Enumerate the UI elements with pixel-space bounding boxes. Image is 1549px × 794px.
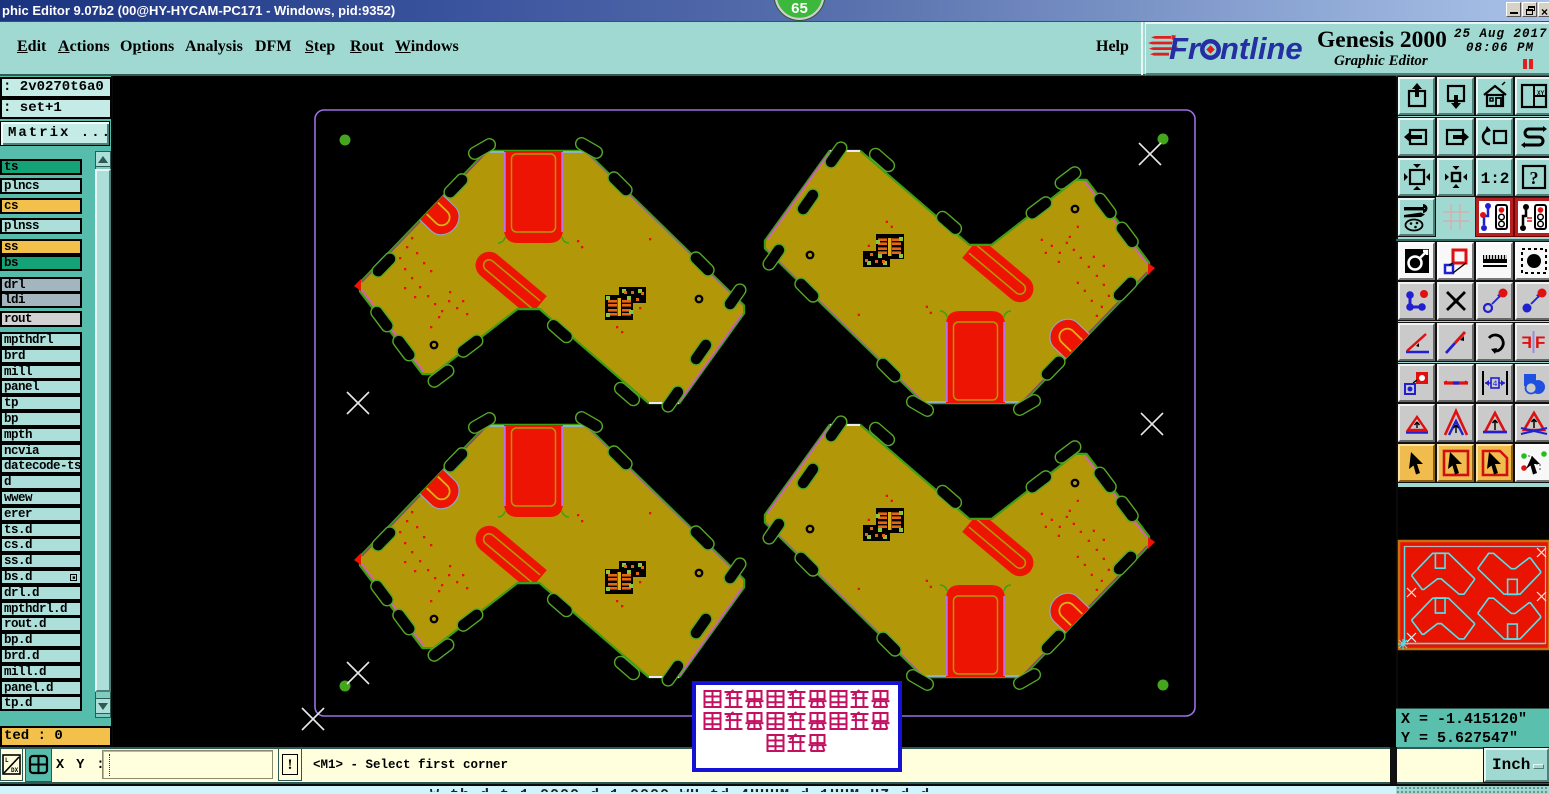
svg-text:DX: DX [11, 767, 19, 774]
svg-text:L: L [5, 757, 9, 764]
svg-text:65: 65 [791, 0, 808, 17]
svg-text:4: 4 [1492, 380, 1497, 389]
svg-text:F: F [1535, 333, 1545, 352]
svg-text:F: F [1521, 333, 1531, 352]
svg-text:XY: XY [1537, 90, 1545, 97]
svg-text:Fr: Fr [1169, 31, 1202, 66]
svg-text:1:2: 1:2 [1480, 170, 1509, 188]
svg-text:?: ? [1529, 168, 1538, 188]
svg-text:ntline: ntline [1220, 31, 1303, 66]
